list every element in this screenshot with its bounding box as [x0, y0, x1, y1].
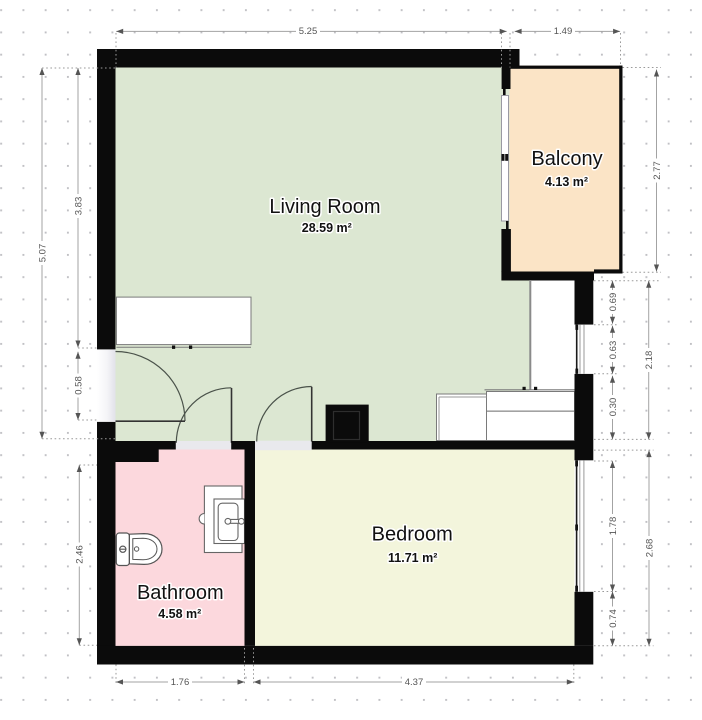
svg-text:Bedroom: Bedroom — [372, 523, 453, 545]
svg-text:0.69: 0.69 — [608, 293, 619, 312]
svg-text:28.59 m²: 28.59 m² — [302, 221, 352, 235]
svg-text:1.49: 1.49 — [554, 26, 573, 37]
svg-text:0.74: 0.74 — [608, 609, 619, 628]
svg-text:1.76: 1.76 — [171, 677, 190, 688]
svg-text:2.46: 2.46 — [75, 545, 86, 564]
svg-text:Balcony: Balcony — [531, 148, 602, 170]
svg-text:Living Room: Living Room — [269, 196, 380, 218]
svg-text:11.71 m²: 11.71 m² — [388, 551, 437, 565]
svg-text:5.25: 5.25 — [299, 26, 318, 37]
svg-text:2.18: 2.18 — [644, 351, 655, 370]
svg-text:4.13 m²: 4.13 m² — [545, 175, 588, 189]
svg-text:2.77: 2.77 — [652, 161, 663, 180]
svg-text:1.78: 1.78 — [608, 517, 619, 536]
svg-text:4.58 m²: 4.58 m² — [158, 607, 201, 621]
svg-text:5.07: 5.07 — [37, 244, 48, 263]
svg-text:0.30: 0.30 — [608, 398, 619, 417]
svg-text:0.58: 0.58 — [73, 376, 84, 395]
svg-text:4.37: 4.37 — [405, 677, 424, 688]
svg-text:2.68: 2.68 — [644, 539, 655, 558]
svg-text:3.83: 3.83 — [73, 197, 84, 216]
svg-text:0.63: 0.63 — [608, 341, 619, 360]
svg-text:Bathroom: Bathroom — [137, 582, 224, 604]
